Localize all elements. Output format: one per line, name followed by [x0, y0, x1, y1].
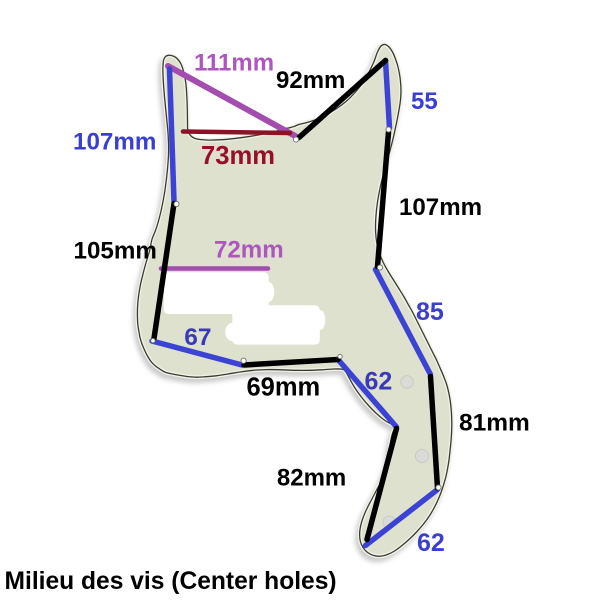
- svg-text:107mm: 107mm: [73, 129, 156, 156]
- svg-text:107mm: 107mm: [399, 194, 482, 221]
- svg-text:72mm: 72mm: [214, 237, 284, 264]
- svg-text:62: 62: [365, 368, 393, 396]
- svg-text:111mm: 111mm: [194, 50, 274, 77]
- svg-text:62: 62: [417, 529, 445, 557]
- svg-text:81mm: 81mm: [459, 410, 530, 437]
- svg-text:69mm: 69mm: [247, 374, 321, 402]
- svg-text:82mm: 82mm: [277, 465, 346, 492]
- svg-text:55: 55: [411, 88, 438, 115]
- svg-text:92mm: 92mm: [276, 67, 345, 94]
- svg-text:85: 85: [416, 298, 444, 326]
- svg-text:67: 67: [184, 324, 211, 351]
- svg-text:105mm: 105mm: [74, 238, 157, 265]
- svg-text:Milieu des vis (Center holes): Milieu des vis (Center holes): [5, 568, 337, 595]
- svg-text:73mm: 73mm: [201, 142, 275, 170]
